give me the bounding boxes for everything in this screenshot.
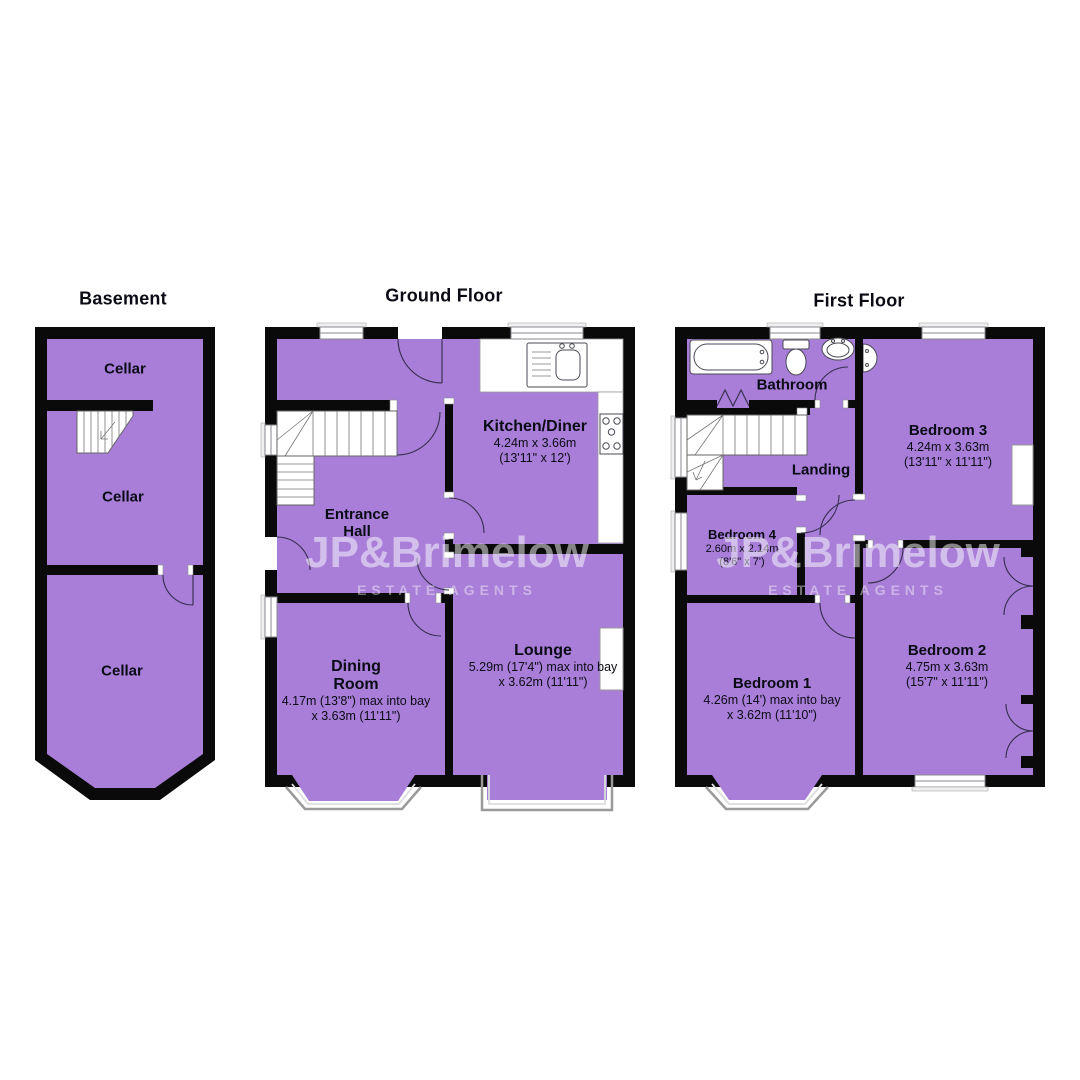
- lounge-bay-window: [482, 775, 612, 810]
- bedroom4-side-window: [671, 511, 687, 572]
- ground-floor-plan: [261, 323, 635, 810]
- basement-wall-1: [35, 400, 153, 411]
- basement-wall-2: [35, 565, 163, 575]
- door-jamb: [188, 565, 193, 575]
- dining-side-window: [261, 595, 277, 639]
- bathtub-icon: [690, 340, 772, 374]
- kitchen-counter-side: [598, 392, 623, 543]
- door-jamb: [796, 527, 806, 533]
- door-jamb: [845, 595, 850, 603]
- door-jamb: [158, 565, 163, 575]
- bathroom-window: [767, 323, 823, 339]
- basement-wall-2b: [193, 565, 215, 575]
- door-jamb: [444, 533, 454, 539]
- door-jamb: [898, 540, 903, 548]
- door-jamb: [444, 398, 454, 404]
- bedroom3-built-in: [1012, 445, 1033, 505]
- door-jamb: [444, 588, 454, 594]
- floor-plan-canvas: Basement Ground Floor First Floor Cellar…: [0, 0, 1080, 1080]
- door-jamb: [444, 492, 454, 498]
- door-jamb: [796, 495, 806, 501]
- door-jamb: [405, 593, 410, 603]
- door-jamb: [815, 400, 820, 408]
- first-floor-plan: [671, 323, 1045, 809]
- door-jamb: [444, 552, 454, 558]
- door-jamb: [853, 535, 865, 541]
- kitchen-window: [508, 323, 586, 339]
- door-jamb: [815, 595, 820, 603]
- bathroom-basin-icon: [822, 338, 854, 360]
- door-jamb: [868, 540, 873, 548]
- bedroom3-window: [919, 323, 988, 339]
- floor-plan-drawing: [0, 0, 1080, 1080]
- door-jamb: [853, 494, 865, 500]
- ground-window-front-left: [317, 323, 366, 339]
- door-jamb: [843, 400, 848, 408]
- basement-plan: [35, 327, 215, 800]
- dining-bay-window: [286, 775, 421, 809]
- bedroom2-window: [912, 775, 988, 791]
- hall-side-window: [261, 423, 277, 457]
- lounge-chimney-breast: [600, 628, 623, 690]
- door-jamb: [436, 593, 441, 603]
- kitchen-sink-icon: [527, 343, 587, 387]
- landing-side-window: [671, 416, 687, 479]
- bedroom1-bay-window: [706, 775, 828, 809]
